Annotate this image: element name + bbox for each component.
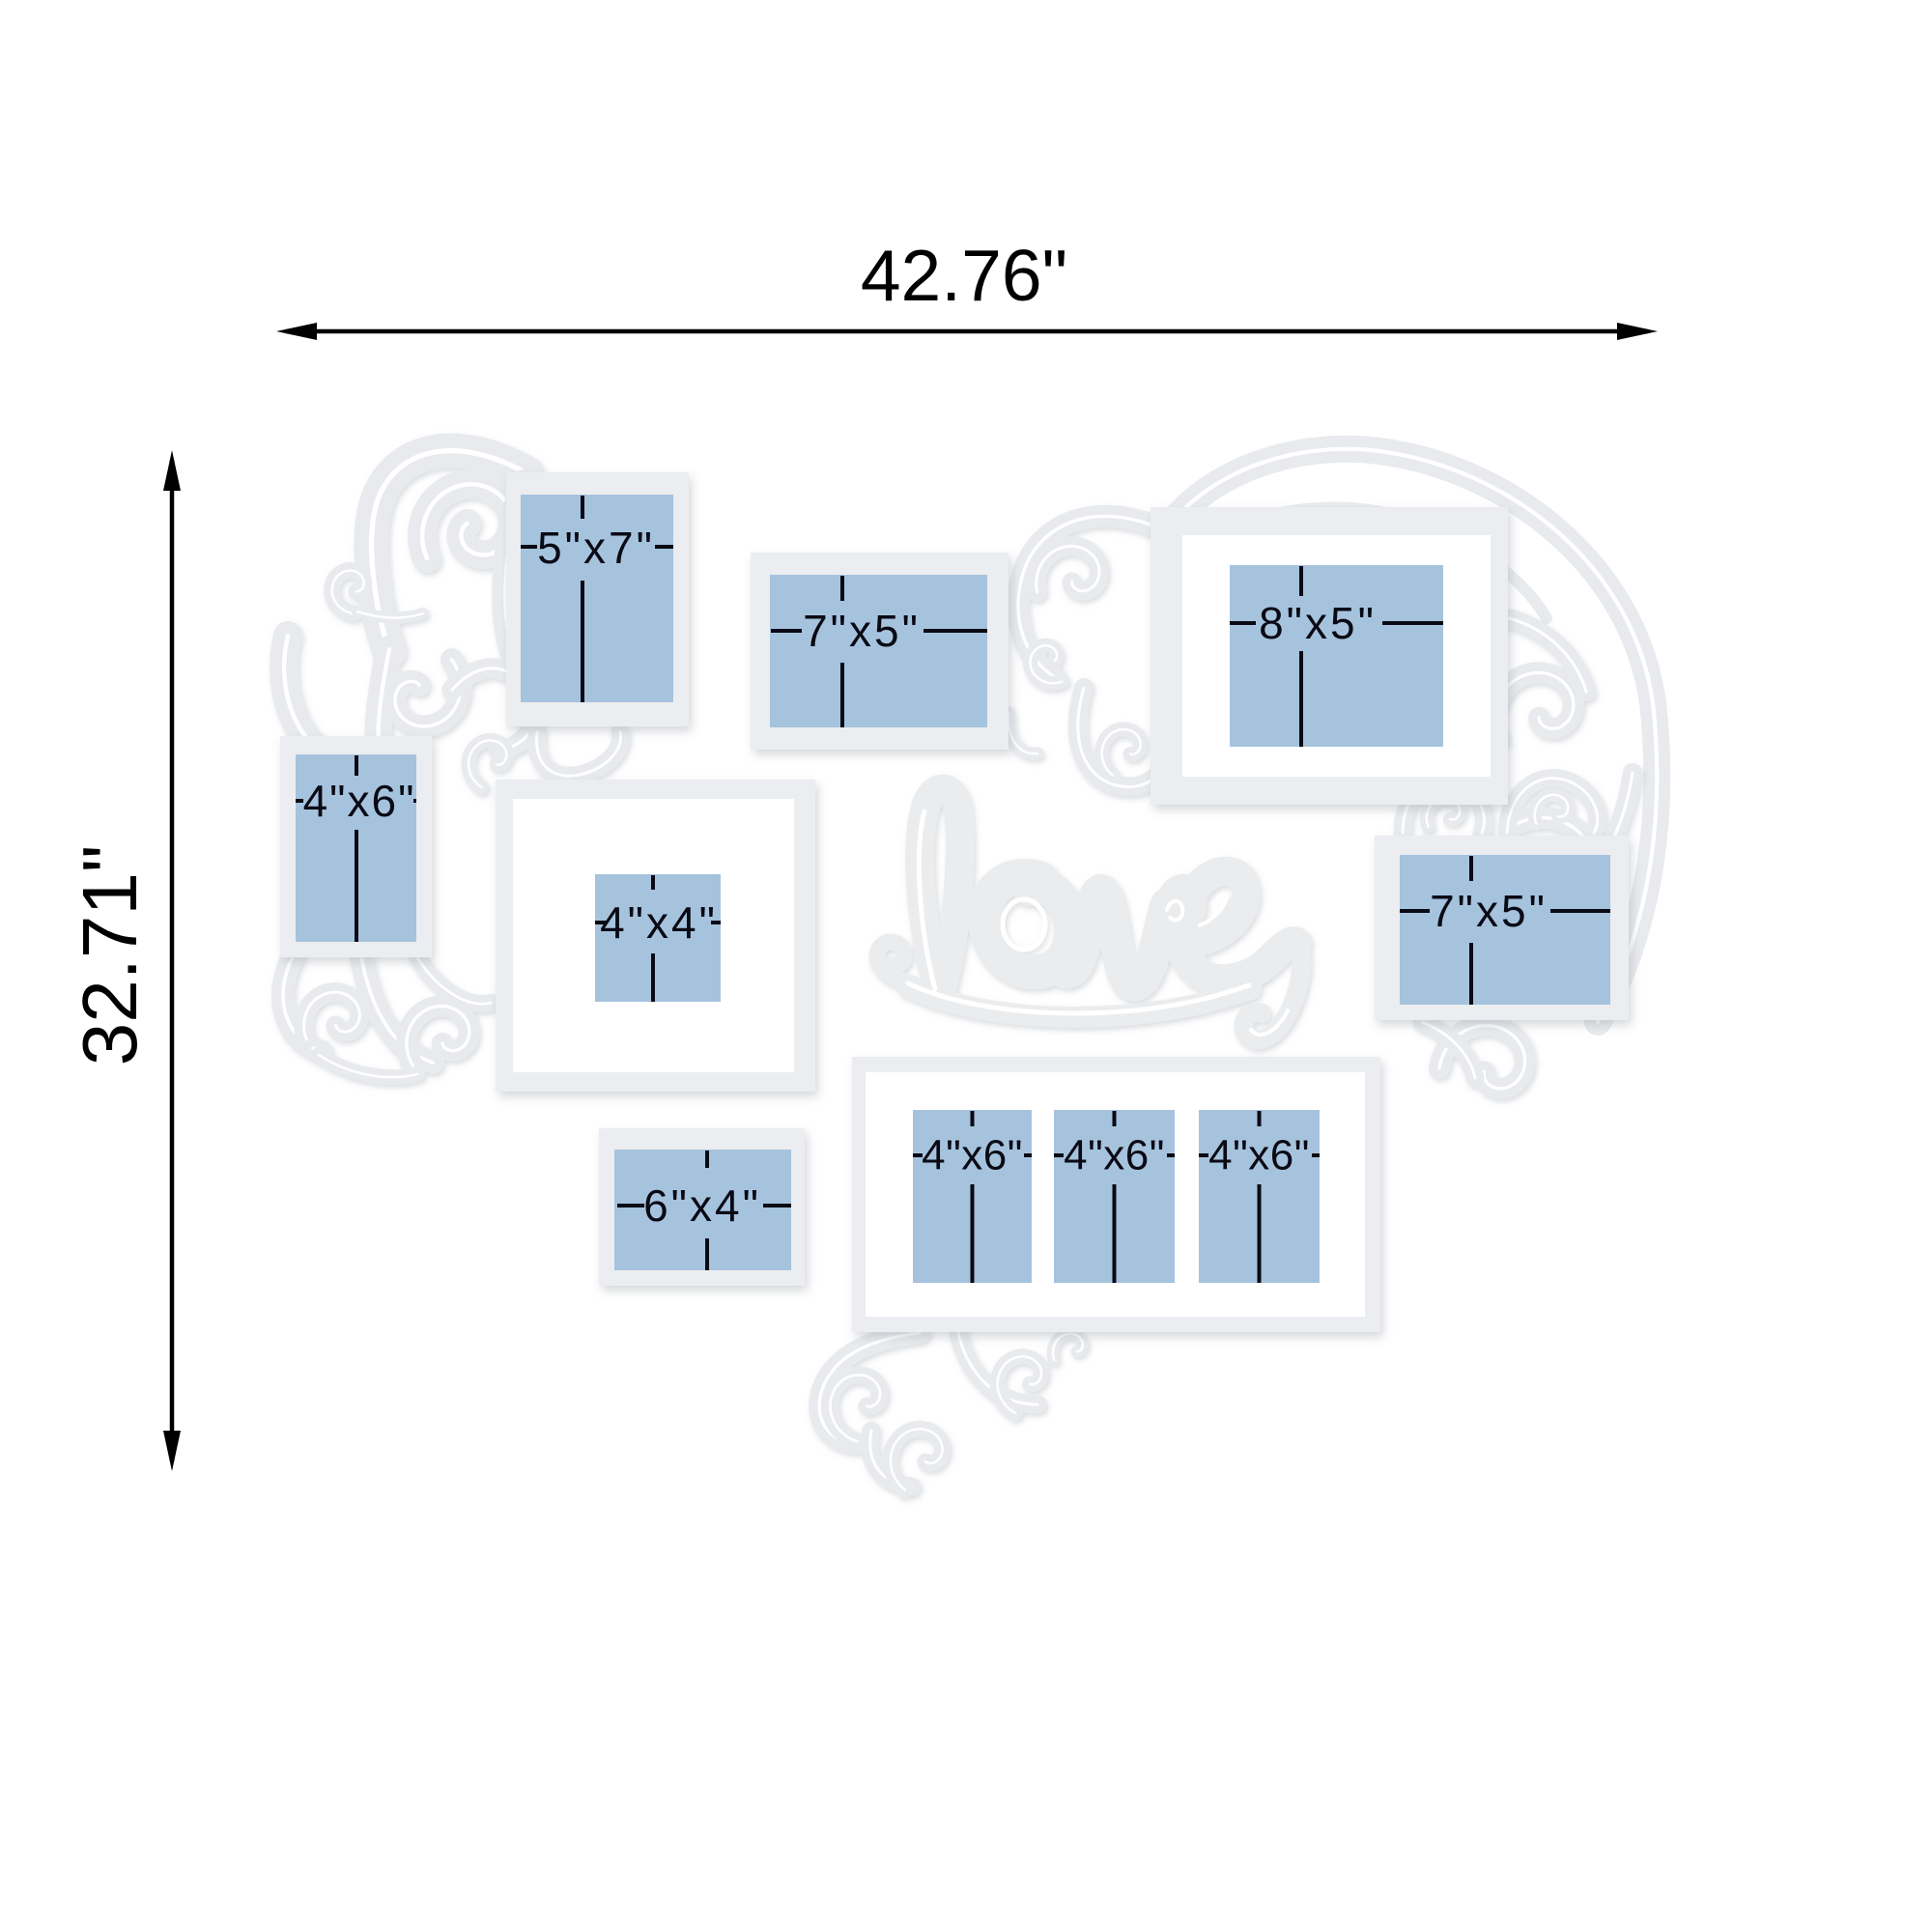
svg-text:7"x5": 7"x5": [803, 606, 921, 656]
svg-text:8"x5": 8"x5": [1259, 598, 1377, 648]
svg-text:4"x6": 4"x6": [303, 776, 416, 826]
svg-text:32.71": 32.71": [67, 845, 153, 1066]
svg-text:42.76": 42.76": [861, 235, 1067, 316]
svg-text:4"x6": 4"x6": [1064, 1132, 1165, 1179]
svg-text:4"x4": 4"x4": [600, 897, 718, 948]
svg-text:5"x7": 5"x7": [537, 523, 655, 573]
svg-text:4"x6": 4"x6": [922, 1132, 1023, 1179]
svg-text:6"x4": 6"x4": [643, 1180, 761, 1231]
svg-text:4"x6": 4"x6": [1208, 1132, 1310, 1179]
svg-text:7"x5": 7"x5": [1430, 886, 1548, 936]
